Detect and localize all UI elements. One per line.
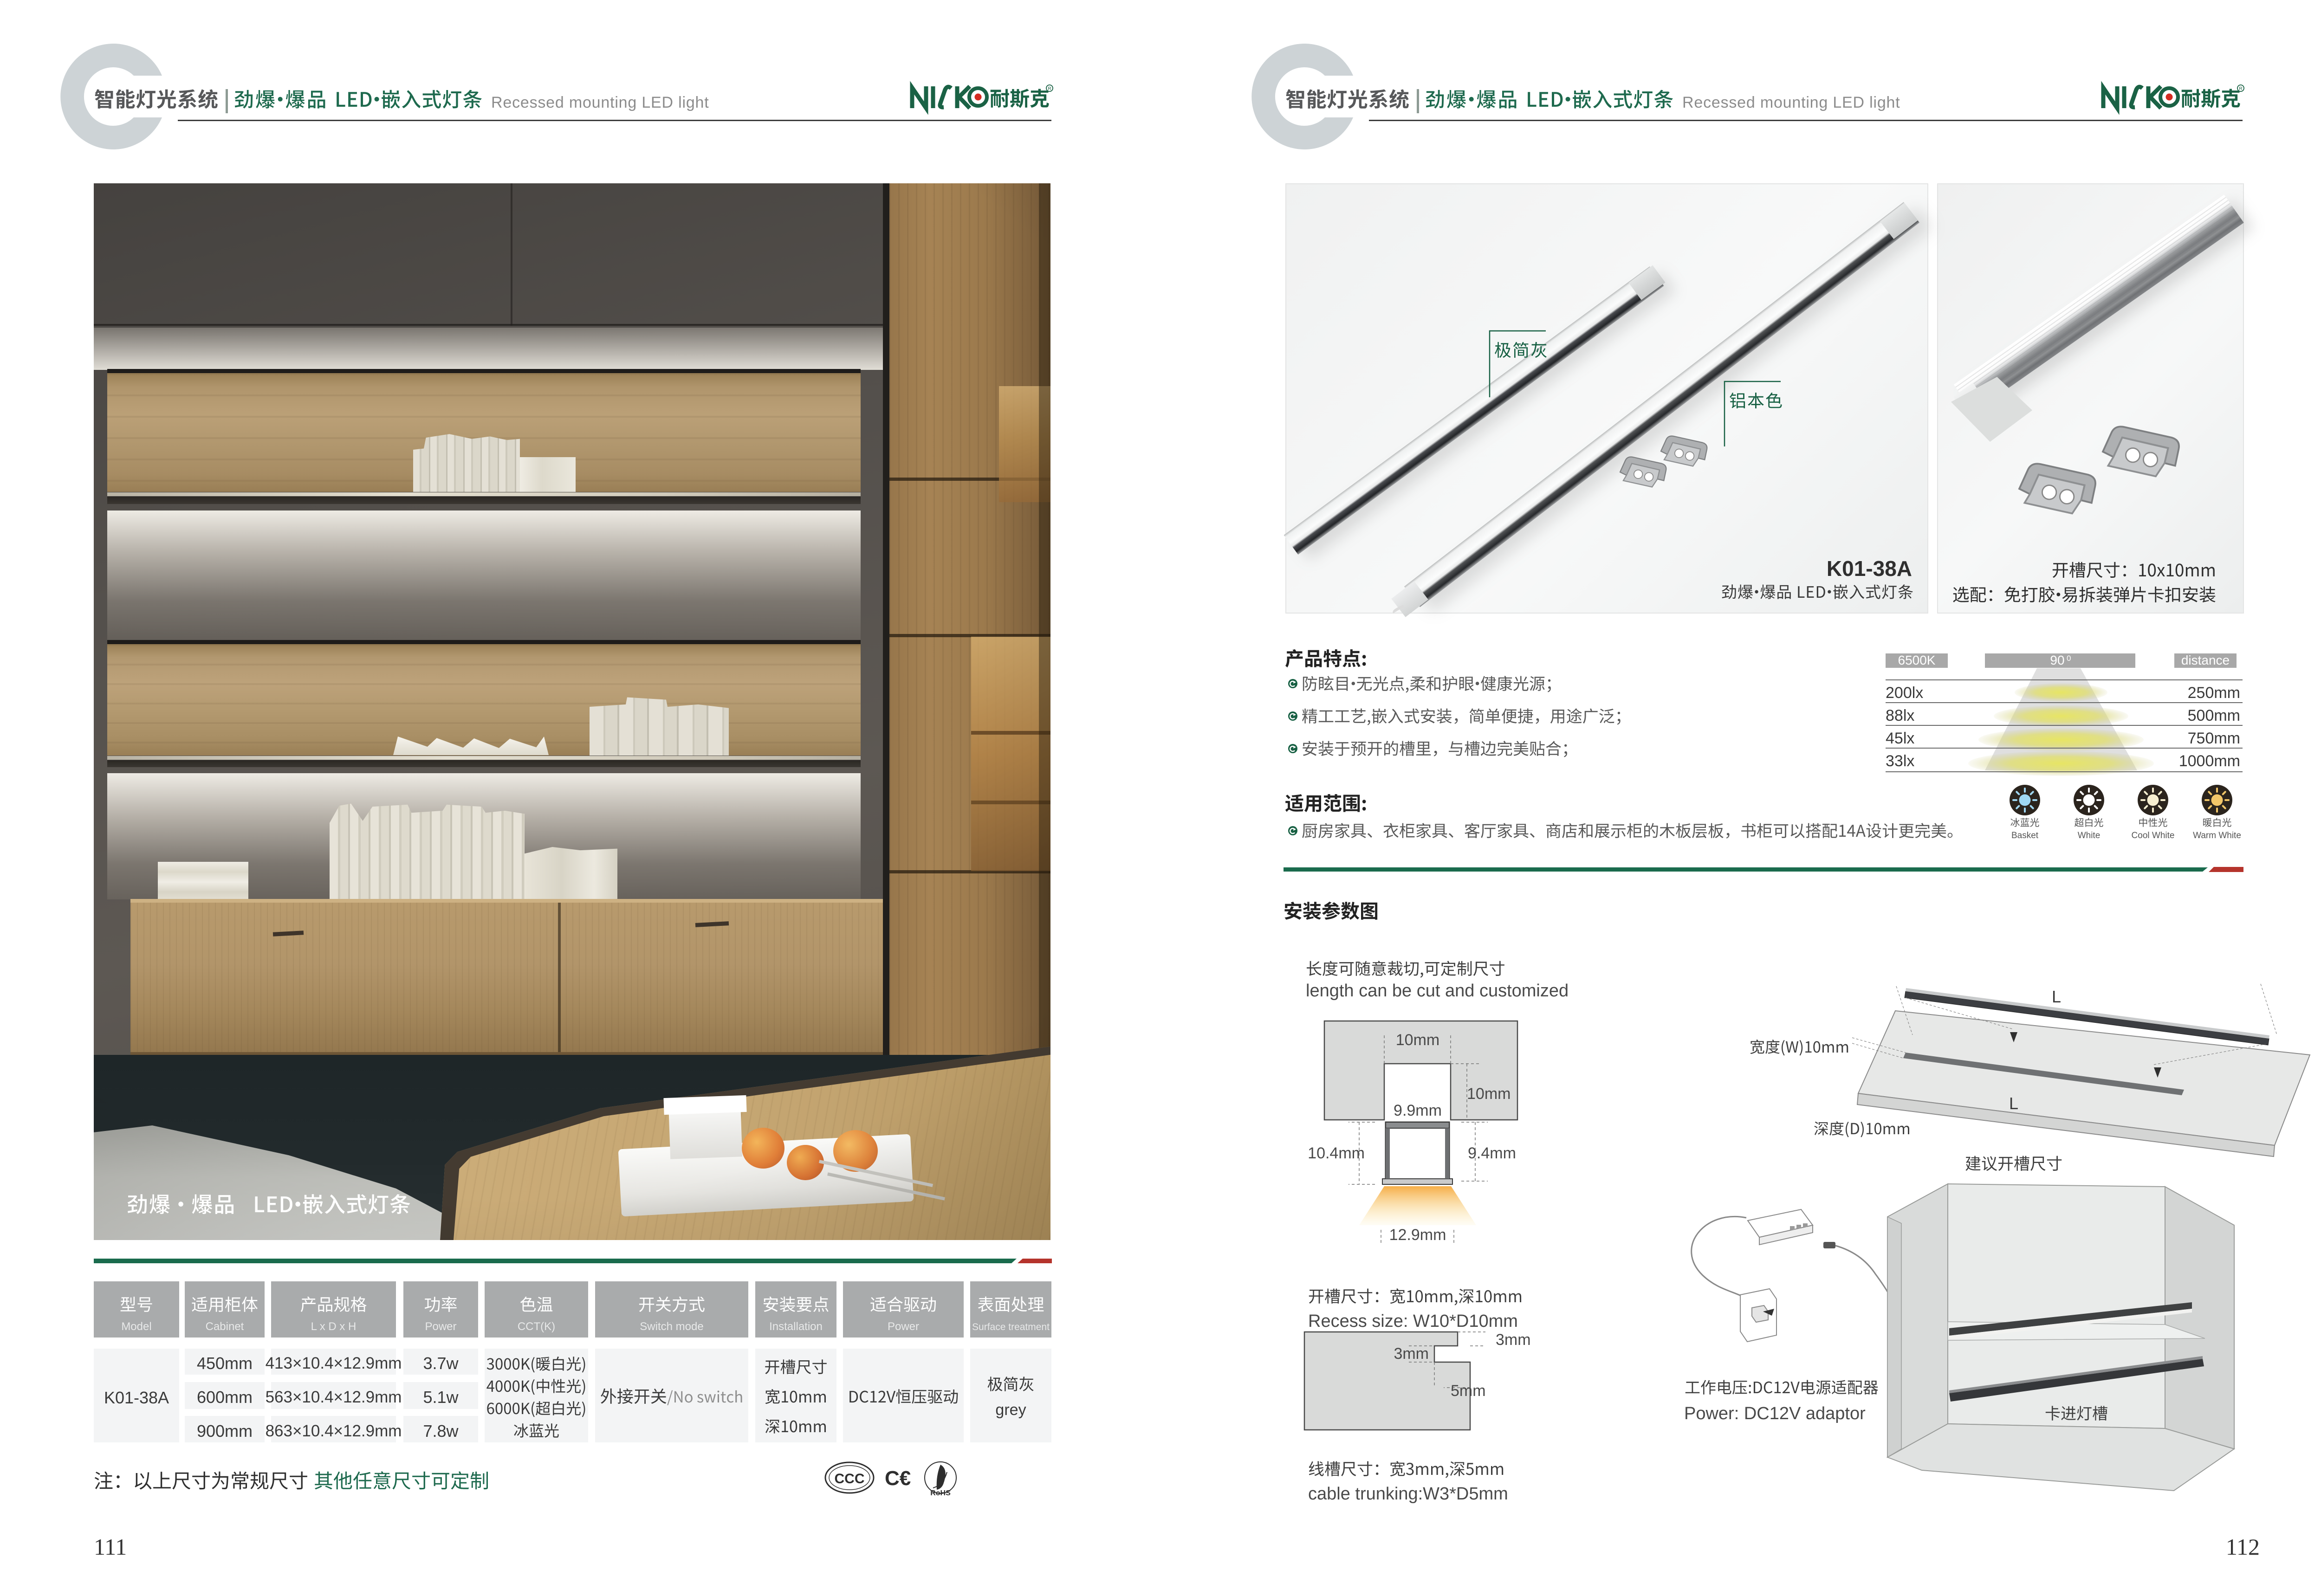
svg-text:12.9mm: 12.9mm <box>1389 1226 1446 1244</box>
svg-text:L: L <box>2009 1094 2018 1113</box>
svg-text:C€: C€ <box>885 1467 911 1490</box>
svg-text:3mm: 3mm <box>1496 1331 1531 1349</box>
svg-text:9.9mm: 9.9mm <box>1394 1102 1442 1119</box>
svg-text:90: 90 <box>2050 653 2064 667</box>
svg-text:10.4mm: 10.4mm <box>1308 1144 1365 1162</box>
svg-text:10mm: 10mm <box>1396 1031 1439 1049</box>
svg-text:9.4mm: 9.4mm <box>1468 1144 1516 1162</box>
svg-text:5mm: 5mm <box>1451 1382 1486 1400</box>
svg-text:0: 0 <box>2067 654 2071 663</box>
svg-text:R: R <box>2239 86 2242 91</box>
svg-text:RoHS: RoHS <box>930 1489 951 1497</box>
svg-text:distance: distance <box>2181 653 2230 667</box>
svg-text:6500K: 6500K <box>1898 653 1936 667</box>
svg-text:3mm: 3mm <box>1394 1345 1429 1363</box>
svg-text:10mm: 10mm <box>1467 1085 1511 1103</box>
svg-text:CCC: CCC <box>835 1471 865 1486</box>
svg-text:L: L <box>2052 987 2061 1006</box>
svg-text:R: R <box>1048 86 1051 91</box>
